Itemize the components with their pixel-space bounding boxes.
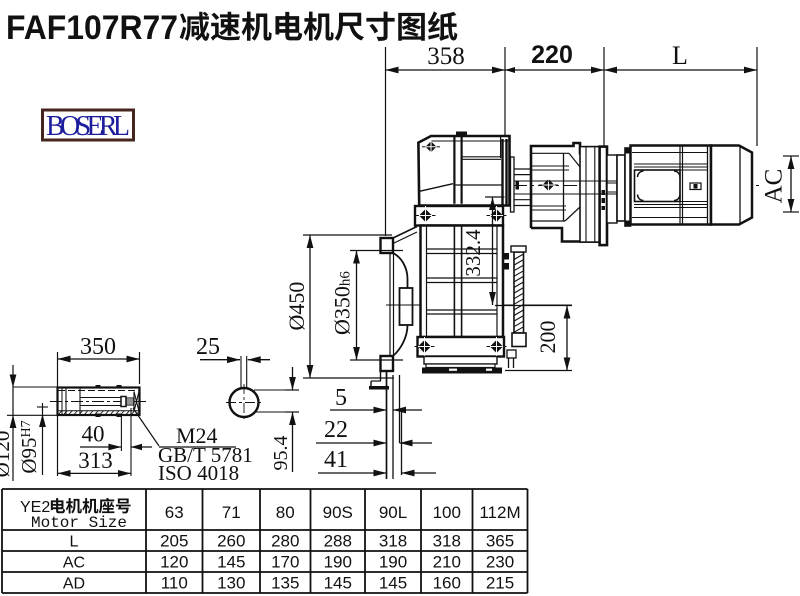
svg-text:Ø450: Ø450 <box>284 282 309 331</box>
svg-text:288: 288 <box>324 532 352 551</box>
svg-text:280: 280 <box>271 532 299 551</box>
svg-text:332.4: 332.4 <box>461 229 485 277</box>
svg-text:110: 110 <box>161 574 188 593</box>
svg-text:95.4: 95.4 <box>270 436 292 471</box>
svg-text:63: 63 <box>165 503 184 522</box>
svg-text:112M: 112M <box>479 503 520 522</box>
svg-text:220: 220 <box>531 41 573 69</box>
svg-text:22: 22 <box>324 417 348 443</box>
svg-text:215: 215 <box>486 574 514 593</box>
svg-text:313: 313 <box>78 448 113 473</box>
svg-text:170: 170 <box>271 553 299 572</box>
svg-text:5: 5 <box>335 385 347 411</box>
svg-text:160: 160 <box>433 574 461 593</box>
svg-text:ISO 4018: ISO 4018 <box>158 461 239 485</box>
svg-text:145: 145 <box>217 553 245 572</box>
svg-text:205: 205 <box>160 532 188 551</box>
svg-text:AC: AC <box>761 169 788 204</box>
svg-text:260: 260 <box>217 532 245 551</box>
svg-text:Ø120: Ø120 <box>0 431 14 478</box>
svg-text:100: 100 <box>433 503 461 522</box>
svg-text:41: 41 <box>324 447 348 473</box>
svg-text:Motor Size: Motor Size <box>31 514 127 532</box>
svg-text:135: 135 <box>271 574 299 593</box>
svg-text:350: 350 <box>80 334 116 360</box>
svg-text:L: L <box>672 41 688 70</box>
svg-text:L: L <box>70 534 79 551</box>
svg-text:200: 200 <box>535 321 560 354</box>
svg-text:90L: 90L <box>379 503 407 522</box>
svg-text:AC: AC <box>63 555 85 572</box>
svg-text:25: 25 <box>196 334 220 360</box>
svg-text:230: 230 <box>486 553 514 572</box>
svg-text:210: 210 <box>433 553 461 572</box>
svg-text:358: 358 <box>427 43 465 70</box>
svg-text:130: 130 <box>217 574 245 593</box>
svg-text:145: 145 <box>379 574 407 593</box>
svg-text:318: 318 <box>379 532 407 551</box>
svg-text:365: 365 <box>486 532 514 551</box>
svg-text:90S: 90S <box>323 503 353 522</box>
svg-text:AD: AD <box>63 576 85 593</box>
svg-text:145: 145 <box>324 574 352 593</box>
svg-text:71: 71 <box>222 503 241 522</box>
svg-text:BOSERL: BOSERL <box>46 111 130 142</box>
svg-text:190: 190 <box>324 553 352 572</box>
svg-text:318: 318 <box>433 532 461 551</box>
svg-text:FAF107R77: FAF107R77 <box>6 9 178 47</box>
svg-text:40: 40 <box>82 422 105 447</box>
svg-text:120: 120 <box>160 553 188 572</box>
svg-text:80: 80 <box>276 503 295 522</box>
svg-text:190: 190 <box>379 553 407 572</box>
